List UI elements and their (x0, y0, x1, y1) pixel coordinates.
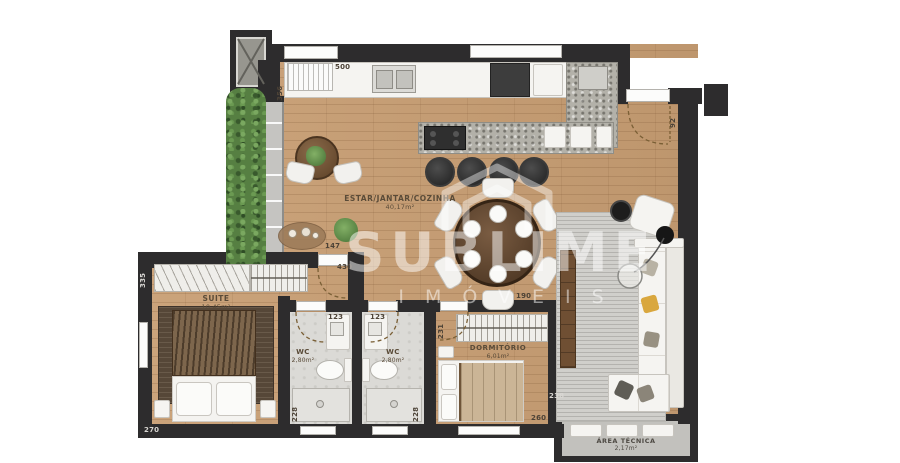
floor-plan: 500 356 147 430 335 270 123 123 228 228 … (0, 0, 900, 463)
watermark-brand: SUBLIME (338, 226, 664, 280)
watermark-subtitle: IMÓVEIS (338, 288, 664, 307)
